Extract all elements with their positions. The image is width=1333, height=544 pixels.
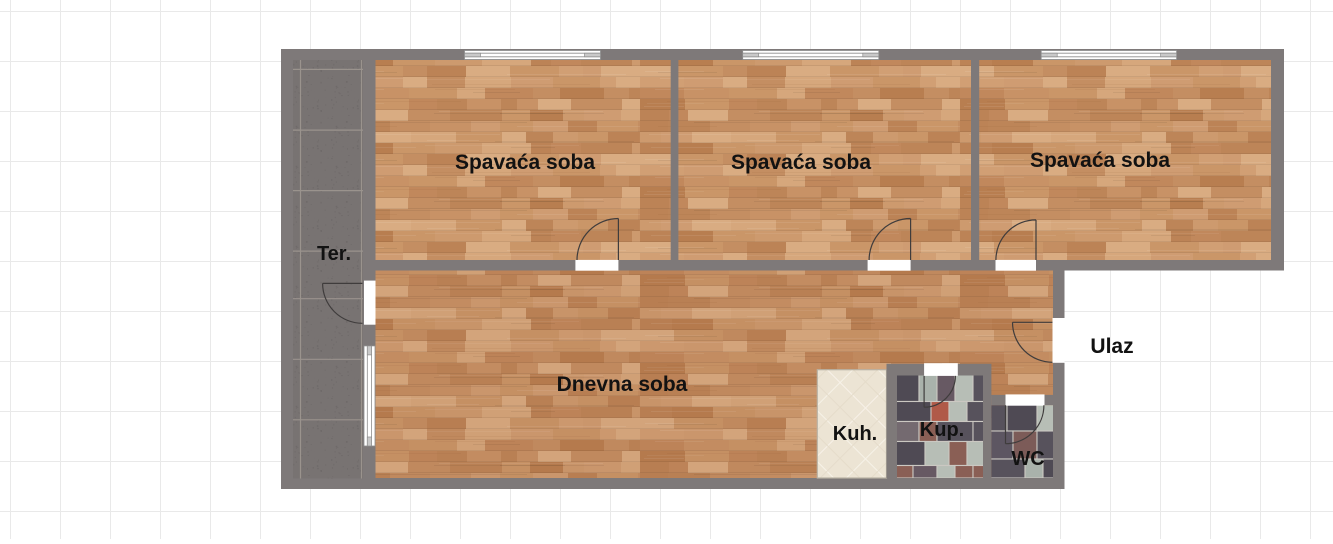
svg-text:WC: WC [1011,448,1044,470]
svg-text:Dnevna soba: Dnevna soba [557,373,688,396]
svg-text:Spavaća soba: Spavaća soba [731,151,871,174]
svg-text:Kup.: Kup. [920,419,964,441]
svg-text:Ter.: Ter. [317,243,351,265]
svg-text:Spavaća soba: Spavaća soba [455,151,595,174]
svg-text:Ulaz: Ulaz [1090,335,1133,358]
svg-text:Spavaća soba: Spavaća soba [1030,149,1170,172]
svg-text:Kuh.: Kuh. [833,423,877,445]
